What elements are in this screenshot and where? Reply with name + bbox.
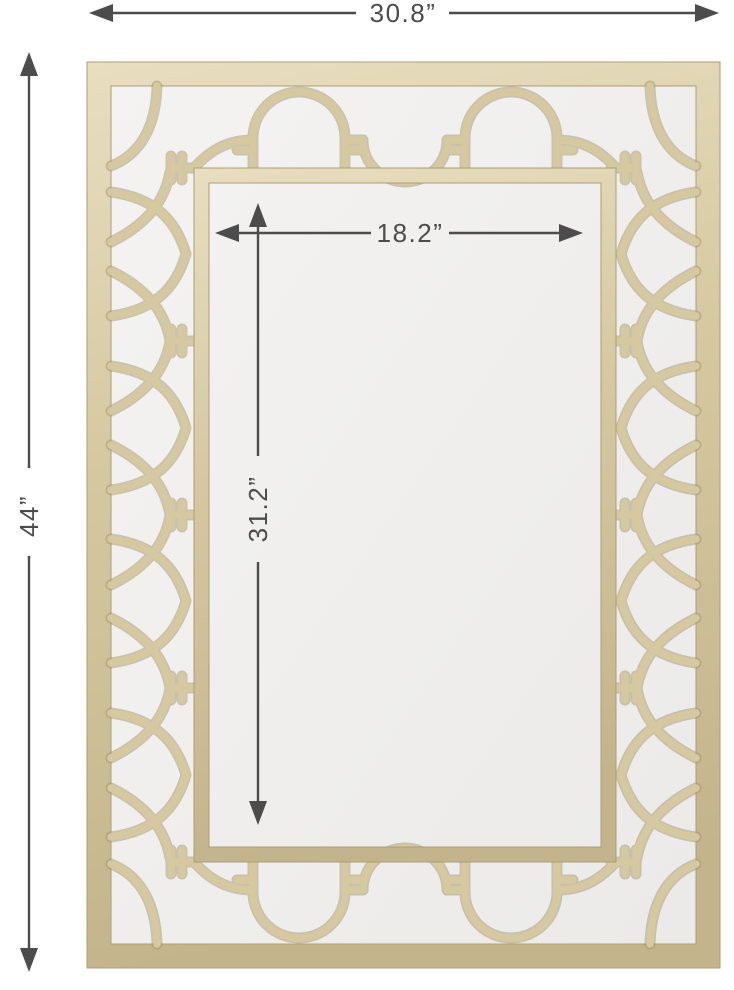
inner-width-label: 18.2” bbox=[377, 218, 444, 248]
overall-height-label: 44” bbox=[14, 495, 44, 537]
dimension-overall-height: 44” bbox=[14, 52, 44, 972]
mirror-diagram-canvas: 30.8” 44” 18.2” 31.2” bbox=[0, 0, 734, 990]
inner-height-label: 31.2” bbox=[243, 476, 273, 543]
arrowhead-up-icon bbox=[20, 52, 38, 76]
product-dimension-diagram: 30.8” 44” 18.2” 31.2” bbox=[0, 0, 734, 990]
arrowhead-left-icon bbox=[89, 4, 113, 22]
overall-width-label: 30.8” bbox=[370, 0, 437, 28]
arrowhead-down-icon bbox=[20, 948, 38, 972]
arrowhead-right-icon bbox=[695, 4, 719, 22]
mirror-product bbox=[87, 62, 720, 968]
dimension-overall-width: 30.8” bbox=[89, 0, 719, 28]
